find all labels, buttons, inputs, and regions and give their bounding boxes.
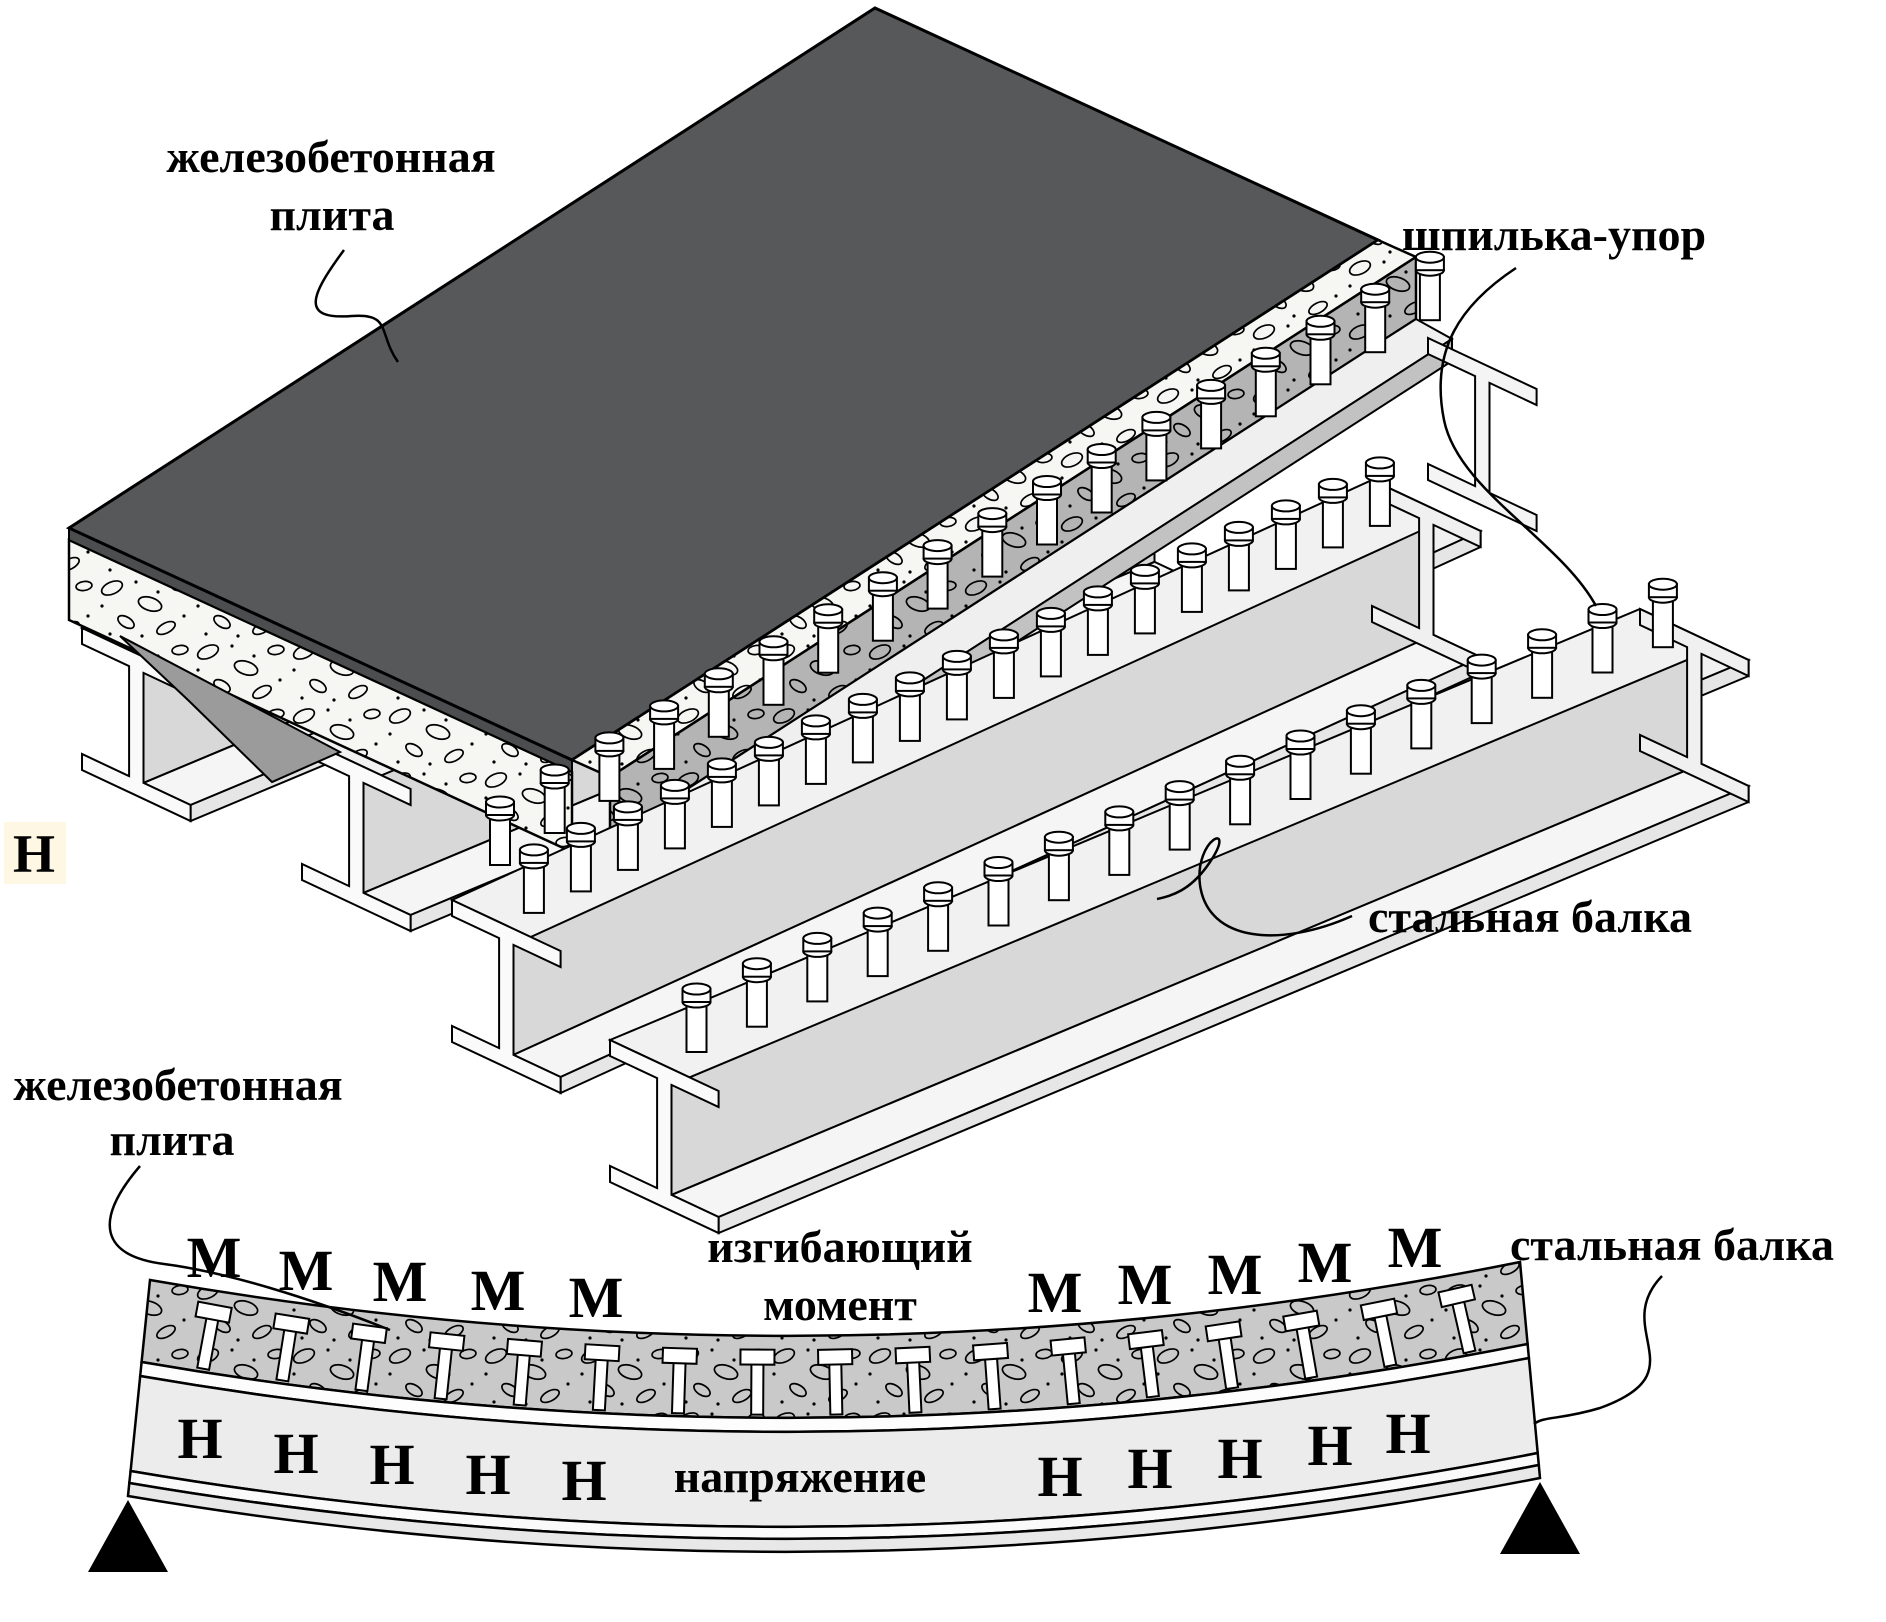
stress-letter: Н bbox=[177, 1406, 222, 1471]
caption-moment-line1: изгибающий bbox=[707, 1221, 972, 1272]
label-stud: шпилька-упор bbox=[1402, 209, 1706, 260]
label-beam-bottom: стальная балка bbox=[1510, 1219, 1834, 1270]
moment-letter: М bbox=[187, 1225, 242, 1290]
moment-letter: М bbox=[1028, 1260, 1083, 1325]
moment-letter: М bbox=[1208, 1242, 1263, 1307]
leader-beam-bottom bbox=[1534, 1276, 1662, 1424]
diagram-svg: железобетонная плита шпилька-упор стальн… bbox=[0, 0, 1886, 1622]
moment-letter: М bbox=[1118, 1252, 1173, 1317]
composite-slab-diagram: железобетонная плита шпилька-упор стальн… bbox=[0, 0, 1886, 1622]
stress-letter: Н bbox=[561, 1448, 606, 1513]
moment-letter: М bbox=[1298, 1230, 1353, 1295]
label-slab-top-line2: плита bbox=[270, 189, 395, 240]
stress-letter: Н bbox=[1307, 1413, 1352, 1478]
stress-letter: Н bbox=[273, 1421, 318, 1486]
label-slab-bottom-line2: плита bbox=[110, 1114, 235, 1165]
stress-letter: Н bbox=[465, 1442, 510, 1507]
stress-letter: Н bbox=[1127, 1436, 1172, 1501]
stress-letter: Н bbox=[1037, 1444, 1082, 1509]
stress-letter: Н bbox=[369, 1432, 414, 1497]
pin-support-right bbox=[1500, 1482, 1580, 1554]
caption-moment-line2: момент bbox=[763, 1279, 917, 1330]
label-slab-top-line1: железобетонная bbox=[166, 131, 495, 182]
height-mark: Н bbox=[13, 824, 55, 884]
moment-letter: М bbox=[1388, 1215, 1443, 1280]
label-slab-bottom-line1: железобетонная bbox=[13, 1059, 342, 1110]
isometric-view: железобетонная плита шпилька-упор стальн… bbox=[4, 8, 1749, 1233]
stress-letter: Н bbox=[1385, 1401, 1430, 1466]
stress-letter: Н bbox=[1217, 1426, 1262, 1491]
caption-stress: напряжение bbox=[674, 1451, 926, 1502]
moment-letter: М bbox=[471, 1258, 526, 1323]
moment-letter: М bbox=[373, 1249, 428, 1314]
pin-support-left bbox=[88, 1500, 168, 1572]
moment-letter: М bbox=[569, 1265, 624, 1330]
label-beam-top: стальная балка bbox=[1368, 891, 1692, 942]
